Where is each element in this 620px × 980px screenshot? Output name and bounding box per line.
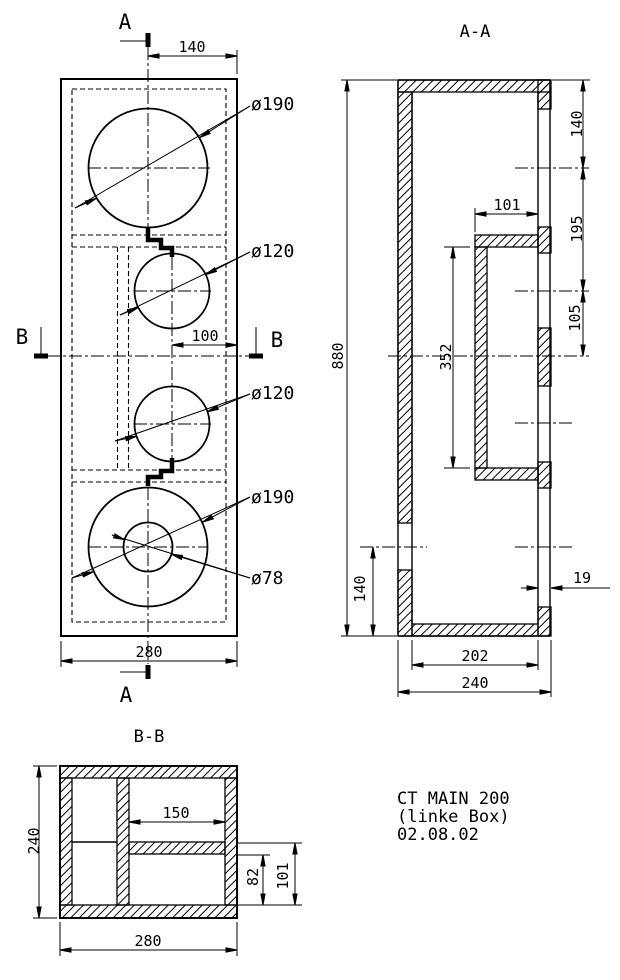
bb-inner-wall (117, 778, 129, 905)
leader-line (72, 497, 250, 578)
section-letter-b-right: B (271, 328, 284, 352)
view-title-aa: A-A (460, 22, 491, 42)
dia-label: ø120 (251, 241, 294, 262)
label-dia-bottom: ø190 (72, 487, 294, 578)
leader-arrow (203, 497, 250, 522)
dim-mid-offset: 100 (172, 327, 237, 345)
dia-label: ø78 (251, 568, 284, 589)
dim-label: 880 (329, 342, 347, 369)
dim-label: 140 (178, 38, 205, 56)
leader-arrow (112, 535, 125, 540)
dim-bb-shelf: 82 101 (237, 843, 302, 905)
dim-bb-depth: 240 (25, 766, 57, 918)
dim-label: 280 (135, 643, 162, 661)
dim-label: 240 (461, 674, 488, 692)
dim-wall-thickness: 19 (521, 569, 610, 588)
drawing-sheet: A A B B 140 100 280 (0, 0, 620, 980)
dim-bb-width: 280 (60, 922, 237, 956)
front-baffle-seg (538, 462, 551, 488)
front-baffle-seg (538, 328, 551, 386)
dim-label: 352 (437, 343, 455, 370)
drawing-canvas: A A B B 140 100 280 (0, 0, 620, 980)
cut-plane-steps (148, 228, 172, 486)
dim-label: 195 (568, 215, 586, 242)
leader-arrow (75, 198, 96, 208)
dim-top-offset: 140 (148, 38, 237, 74)
dim-label: 19 (573, 569, 591, 587)
dim-port-height: 140 (351, 547, 373, 636)
title-line3: 02.08.02 (397, 825, 479, 845)
dim-label: 105 (566, 304, 584, 331)
aa-wall-edges (398, 80, 550, 636)
bb-bottom-wall (60, 905, 237, 918)
dim-label: 240 (25, 827, 43, 854)
cut-step-top (148, 228, 172, 257)
dim-inner-depth: 202 (412, 640, 538, 670)
leader-arrow (207, 394, 250, 412)
dim-label: 140 (568, 110, 586, 137)
chamber-bottom-board (475, 468, 538, 480)
dim-label: 150 (162, 804, 189, 822)
speaker-circles (89, 109, 210, 607)
section-letter-b-left: B (16, 325, 29, 349)
dim-width: 280 (61, 641, 237, 667)
section-aa: A-A (329, 22, 610, 697)
view-title-bb: B-B (134, 727, 165, 747)
chamber-top-board (475, 235, 538, 247)
dim-label: 280 (134, 932, 161, 950)
top-wall (398, 80, 550, 92)
leader-arrow (120, 307, 138, 315)
section-letter-a-top: A (119, 10, 132, 34)
dim-label: 100 (191, 327, 218, 345)
label-dia-top: ø190 (75, 94, 294, 208)
dim-chamber-height: 352 (437, 247, 470, 468)
chamber-back-board (475, 247, 487, 468)
aa-hatched-walls (398, 80, 551, 636)
dia-label: ø120 (251, 383, 294, 404)
bb-divider-board (129, 842, 225, 854)
dia-label: ø190 (251, 487, 294, 508)
bb-top-wall (60, 766, 237, 778)
title-line1: CT MAIN 200 (397, 789, 510, 809)
dim-label: 101 (493, 196, 520, 214)
dim-label: 202 (461, 647, 488, 665)
leader-line (75, 106, 250, 208)
leader-arrow (200, 106, 250, 138)
section-b-markers: B B (16, 325, 284, 356)
title-block: CT MAIN 200 (linke Box) 02.08.02 (397, 789, 510, 845)
dim-label: 140 (351, 575, 369, 602)
back-wall-upper (398, 92, 412, 523)
dim-label: 82 (244, 868, 262, 886)
front-view: A A B B 140 100 280 (16, 10, 295, 707)
dia-label: ø190 (251, 94, 294, 115)
front-baffle-seg (538, 80, 551, 109)
cabinet-outline (61, 79, 237, 636)
label-dia-mid-lower: ø120 (115, 383, 294, 441)
front-baffle-seg (538, 607, 551, 636)
section-letter-a-bottom: A (120, 683, 133, 707)
back-wall-lower (398, 570, 412, 636)
leader-arrow (171, 554, 250, 578)
section-bb: B-B 240 280 150 (25, 727, 302, 956)
dim-right-column: 140 195 105 (552, 80, 590, 356)
dim-label: 101 (274, 862, 292, 889)
bb-right-wall (225, 778, 237, 905)
dim-bb-chamber-width: 150 (129, 804, 225, 822)
dim-height-880: 880 (329, 80, 397, 636)
title-line2: (linke Box) (397, 807, 510, 827)
bottom-wall (412, 624, 538, 636)
front-baffle-seg (538, 227, 551, 253)
dim-chamber-depth: 101 (475, 196, 538, 232)
bb-left-wall (60, 778, 72, 905)
leader-arrow (206, 252, 250, 275)
